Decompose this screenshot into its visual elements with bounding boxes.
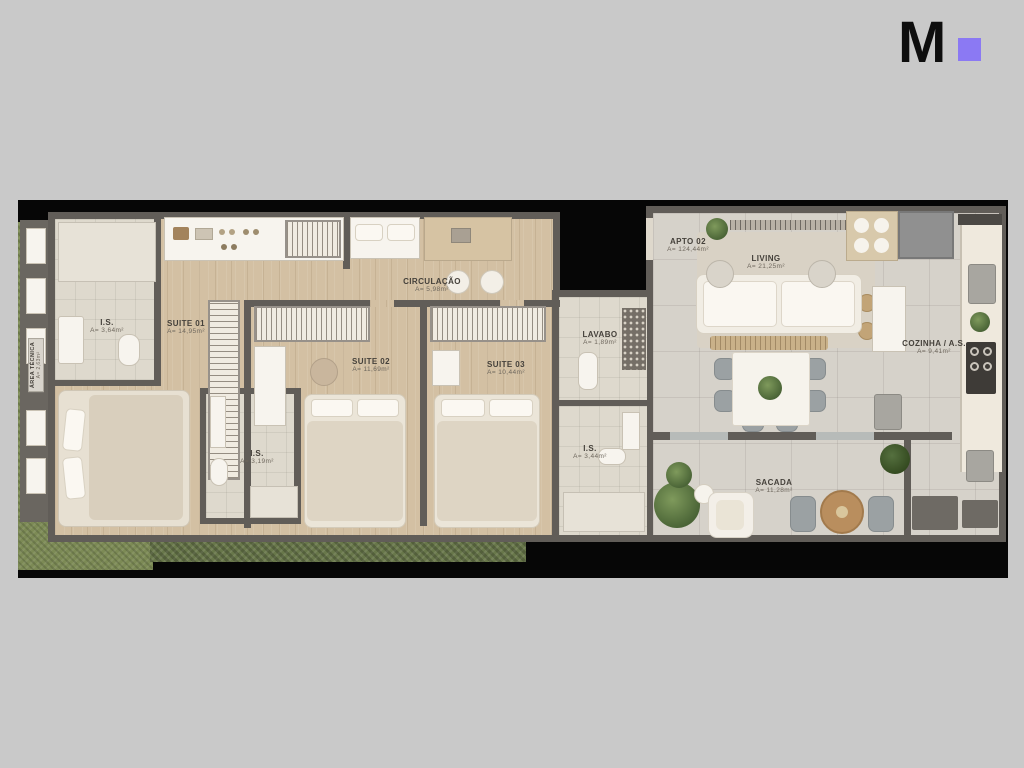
wall [55,380,161,386]
room-label-lavabo: LAVABO A= 1,89m² [583,330,618,346]
page: M [0,0,1024,768]
balcony-plant [880,444,910,474]
laptop [451,228,471,243]
balcony-plant [666,462,692,488]
planter-bench [912,496,958,530]
burner [970,347,979,356]
wall [559,400,647,406]
linen-closet [350,217,420,259]
bed-blanket [307,421,403,521]
box [195,228,213,240]
pillow [489,399,533,417]
sink-counter [622,412,640,450]
room-label-apto-02: APTO 02 A= 124,44m² [667,237,709,253]
ac-unit [26,410,46,446]
dresser-suite02 [254,346,286,426]
lounge-cushion [716,500,744,530]
burner [874,218,889,233]
logo-accent-square-icon [958,38,981,61]
wall [200,388,206,524]
bed-suite02 [304,394,406,528]
cooktop [846,211,898,261]
shower [250,486,298,518]
pillow [441,399,485,417]
pillow [311,399,353,417]
room-label-circulacao: CIRCULAÇÃO A= 5,98m² [403,277,461,293]
balcony-plant [654,482,700,528]
burner [970,362,979,371]
ac-unit [26,228,46,264]
side-table [808,260,836,288]
prep-sink [874,394,902,430]
room-label-cozinha: COZINHA / A.S. A= 9,41m² [902,339,966,355]
room-label-is-right: I.S. A= 3,44m² [573,444,607,460]
ac-unit [26,458,46,494]
brand-logo: M [898,14,1008,74]
sliding-door [816,432,874,440]
bed-blanket [89,395,183,520]
planter-bench [962,500,998,528]
wall [420,300,427,526]
plant [706,218,728,240]
pillow [62,456,86,500]
centerpiece [836,506,848,518]
burner [983,362,992,371]
wardrobe-suite03 [430,306,546,342]
sliding-door [670,432,728,440]
sideboard [730,220,860,230]
desk [424,217,512,261]
wardrobe-suite02 [254,306,370,342]
pillow [355,224,383,241]
room-label-living: LIVING A= 21,25m² [747,254,785,270]
shower [58,222,156,282]
shoe [221,244,227,250]
round-table [820,490,864,534]
bed-blanket [437,421,537,521]
balcony-bench [868,496,894,532]
room-label-area-tecnica: ÁREA TÉCNICA A= 2,63m² [28,338,44,392]
bed-suite03 [434,394,540,528]
kitchen-sink [968,264,996,304]
entry-door-gap [646,218,653,260]
toilet [210,458,228,486]
pouf [310,358,338,386]
wall [343,217,350,269]
table-plant [758,376,782,400]
room-label-suite-03: SUITE 03 A= 10,44m² [487,360,525,376]
desk-chair [480,270,504,294]
room-label-sacada: SACADA A= 11,28m² [755,478,792,494]
door-gap [370,300,394,307]
sink-counter [210,396,226,448]
slat-bench [710,336,828,350]
burner [854,238,869,253]
burner [983,347,992,356]
wall [206,518,301,524]
pillow [357,399,399,417]
room-label-is-top: I.S. A= 3,64m² [90,318,124,334]
hanger-rack [285,220,341,258]
kitchen-island [872,286,906,352]
gas-stove [966,342,996,394]
wardrobe-suite01 [208,300,240,480]
room-label-is-mid: I.S. A= 3,19m² [240,449,274,465]
closet-shelf [164,217,344,261]
pillow [62,408,86,452]
shoe [229,229,235,235]
room-label-suite-02: SUITE 02 A= 11,69m² [352,357,390,373]
shower [563,492,645,532]
refrigerator [898,211,954,259]
bag [173,227,189,240]
sink-counter [58,316,84,364]
vent-hood [958,214,1002,225]
lounge-chair [708,492,754,538]
shoe [231,244,237,250]
laundry-tub [966,450,994,482]
shoe [253,229,259,235]
wine-rack [622,308,646,370]
bed-suite01 [58,390,190,527]
shoe [243,229,249,235]
lavabo-sink [578,352,598,390]
burner [854,218,869,233]
dresser-suite03 [432,350,460,386]
room-label-suite-01: SUITE 01 A= 14,95m² [167,319,205,335]
side-table [706,260,734,288]
floorplan-frame: ÁREA TÉCNICA A= 2,63m² I.S. A= 3,64m² SU… [18,200,1008,578]
pillow [387,224,415,241]
plant [970,312,990,332]
burner [874,238,889,253]
sofa-cushion [781,281,855,327]
toilet [118,334,140,366]
balcony-bench [790,496,816,532]
shoe [219,229,225,235]
ac-unit [26,278,46,314]
logo-letter: M [898,14,943,72]
sofa-cushion [703,281,777,327]
